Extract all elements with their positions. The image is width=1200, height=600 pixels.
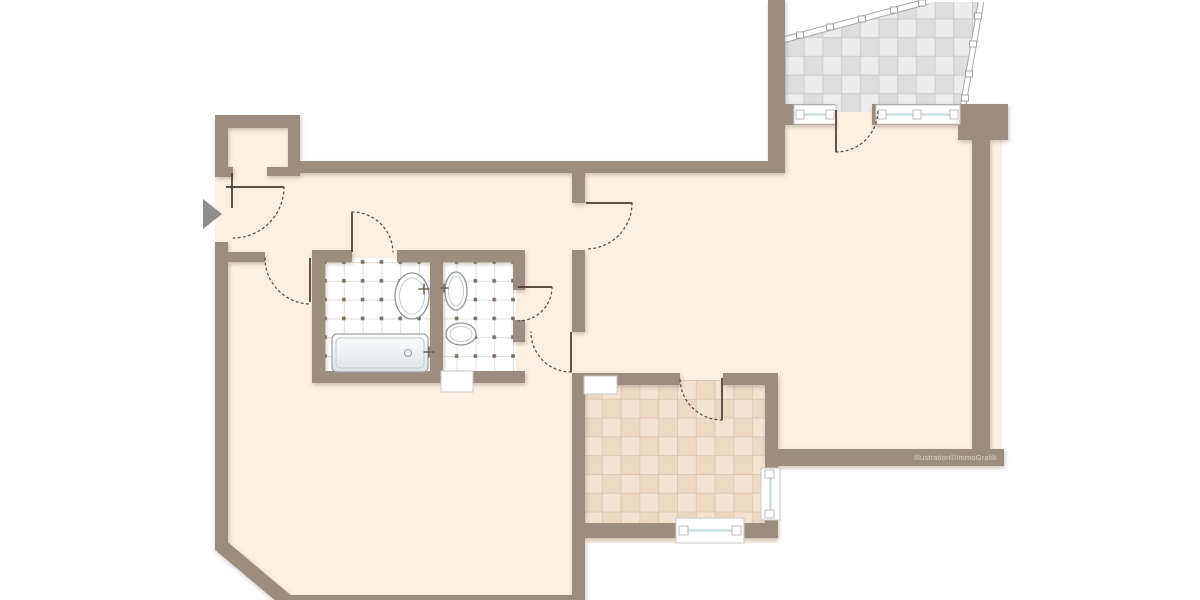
floor-plan: Illustration©ImmoGrafik <box>0 0 1200 600</box>
kitchen-window-bottom <box>676 518 744 543</box>
floor-plan-image: Illustration©ImmoGrafik <box>0 0 1200 600</box>
wc-appliance <box>441 371 473 392</box>
kitchen-window-right <box>761 468 780 520</box>
bathroom-sink <box>395 273 429 319</box>
kitchen-tiles <box>583 380 771 528</box>
balcony <box>783 0 984 112</box>
balcony-window-left <box>794 105 836 124</box>
balcony-tiles <box>785 2 983 112</box>
bathtub <box>332 334 434 372</box>
watermark-credit: Illustration©ImmoGrafik <box>914 453 997 462</box>
toilet <box>446 323 476 345</box>
kitchen-counter <box>584 376 617 394</box>
balcony-window-right <box>876 105 960 124</box>
